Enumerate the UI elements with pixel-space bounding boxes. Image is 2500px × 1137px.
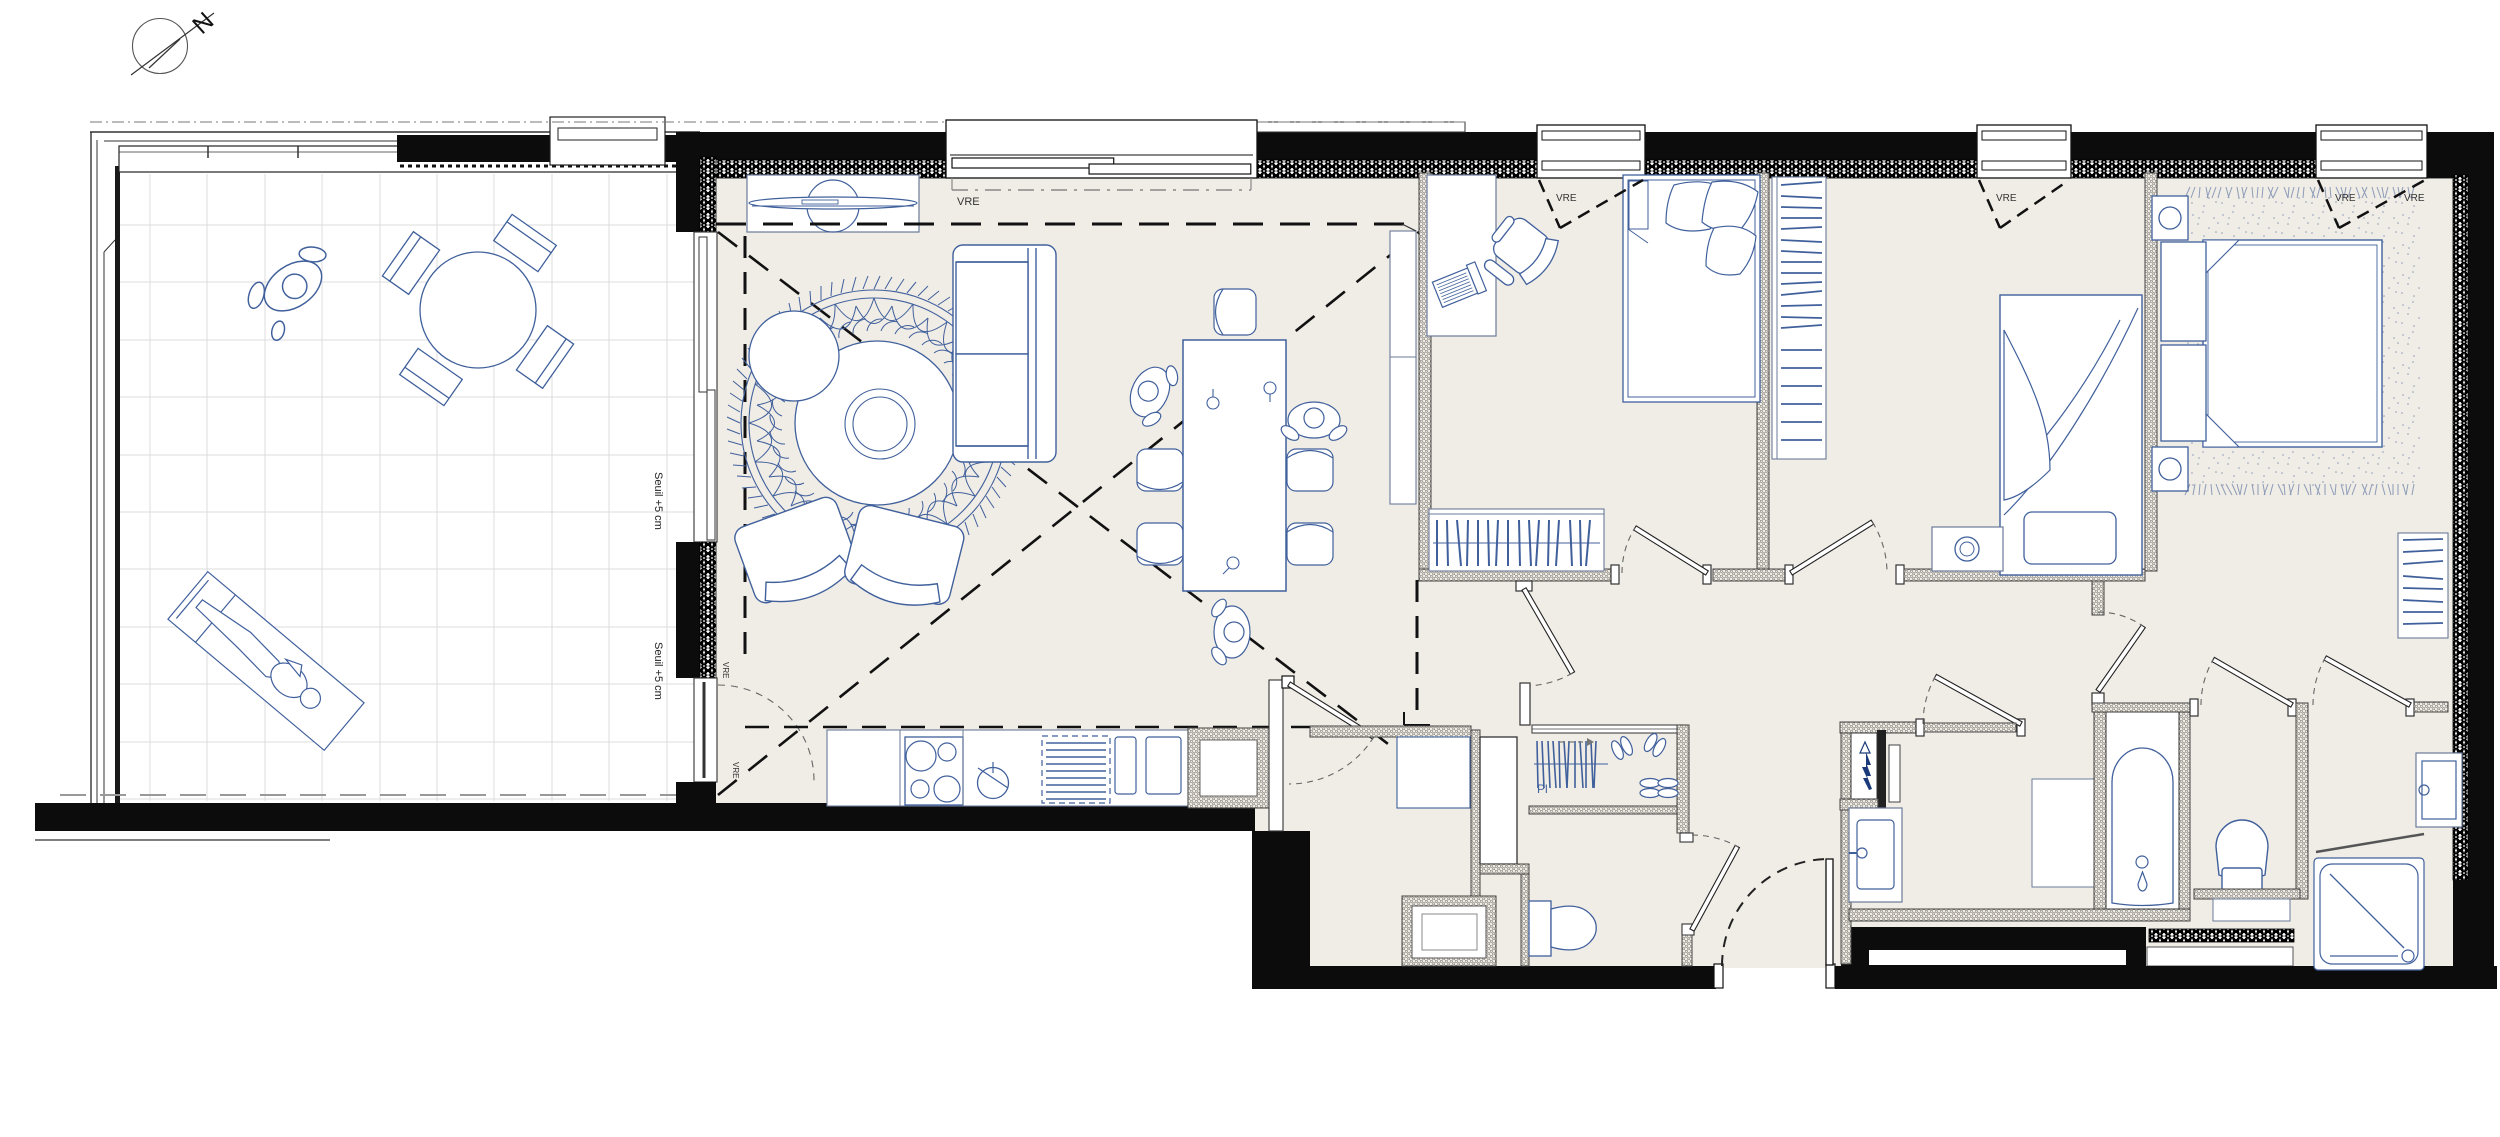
- svg-text:VRE: VRE: [721, 662, 730, 678]
- svg-text:Seuil +5 cm: Seuil +5 cm: [652, 472, 664, 530]
- svg-text:VRE: VRE: [957, 196, 980, 208]
- svg-text:VRE: VRE: [1556, 193, 1577, 204]
- svg-text:Seuil +5 cm: Seuil +5 cm: [652, 642, 664, 700]
- svg-text:VRE: VRE: [2404, 193, 2425, 204]
- svg-text:VRE: VRE: [2335, 193, 2356, 204]
- svg-text:VRE: VRE: [1996, 193, 2017, 204]
- svg-text:Pl: Pl: [1537, 782, 1548, 796]
- svg-text:VRE: VRE: [731, 762, 740, 778]
